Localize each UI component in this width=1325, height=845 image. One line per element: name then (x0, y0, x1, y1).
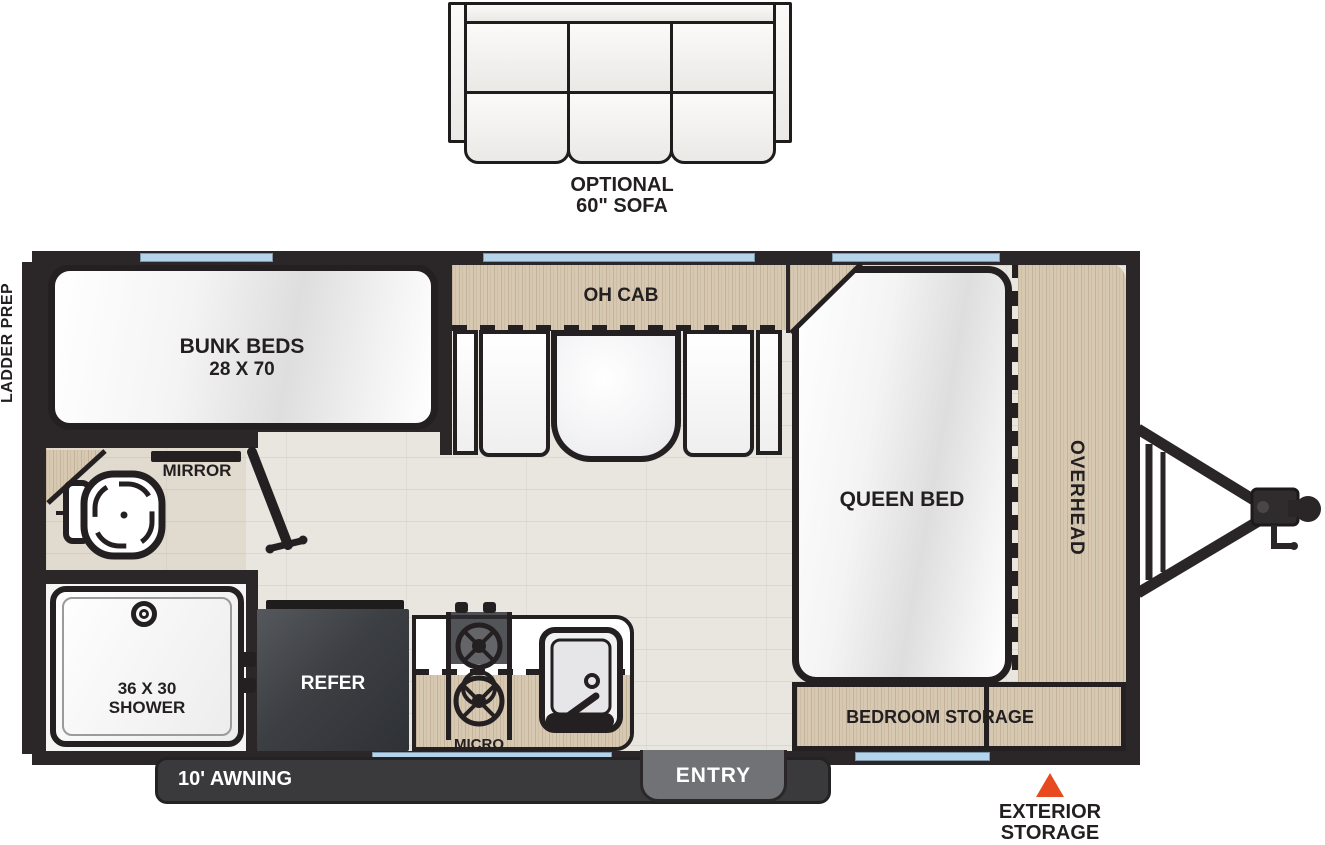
sink-icon (542, 630, 620, 730)
hitch-icon (1138, 429, 1321, 593)
detail-overlay (0, 0, 1325, 845)
bedroom-corner-diagonal (791, 264, 861, 333)
stove-burner-icon (456, 625, 502, 724)
toilet-icon (56, 474, 162, 556)
floorplan-canvas: OPTIONAL 60" SOFA LADDER PREP BUNK BEDS … (0, 0, 1325, 845)
bathroom-door-icon (252, 452, 308, 554)
